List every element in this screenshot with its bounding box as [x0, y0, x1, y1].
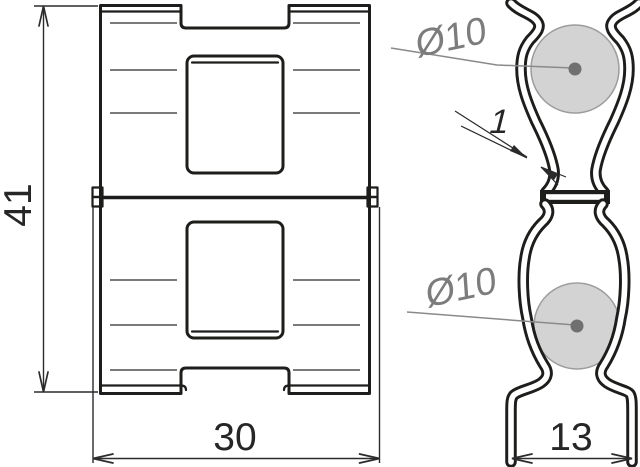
dimension-base-width: 13: [512, 416, 632, 463]
dimension-width: 30: [93, 207, 380, 463]
window-top: [187, 56, 283, 173]
rod-center-dot-top: [569, 63, 582, 76]
front-outline: [101, 6, 370, 394]
front-view: [93, 6, 378, 394]
rod-center-dot-bottom: [571, 320, 584, 333]
technical-drawing-canvas: 41 30 13 1 Ø10 Ø10: [0, 0, 640, 467]
drawing-svg: 41 30 13 1 Ø10 Ø10: [0, 0, 640, 467]
callout-rod-top-label: Ø10: [414, 8, 487, 66]
dimension-height-label: 41: [0, 183, 40, 226]
bottom-hem-right: [284, 386, 369, 391]
dimension-width-label: 30: [213, 416, 256, 459]
dimension-height: 41: [0, 6, 98, 392]
dimension-thickness-label: 1: [486, 103, 514, 140]
dimension-base-width-label: 13: [549, 416, 592, 459]
bottom-hem-left: [101, 386, 186, 391]
window-bottom: [187, 222, 283, 338]
callout-rod-bottom-label: Ø10: [424, 258, 497, 316]
side-view: [391, 3, 639, 462]
